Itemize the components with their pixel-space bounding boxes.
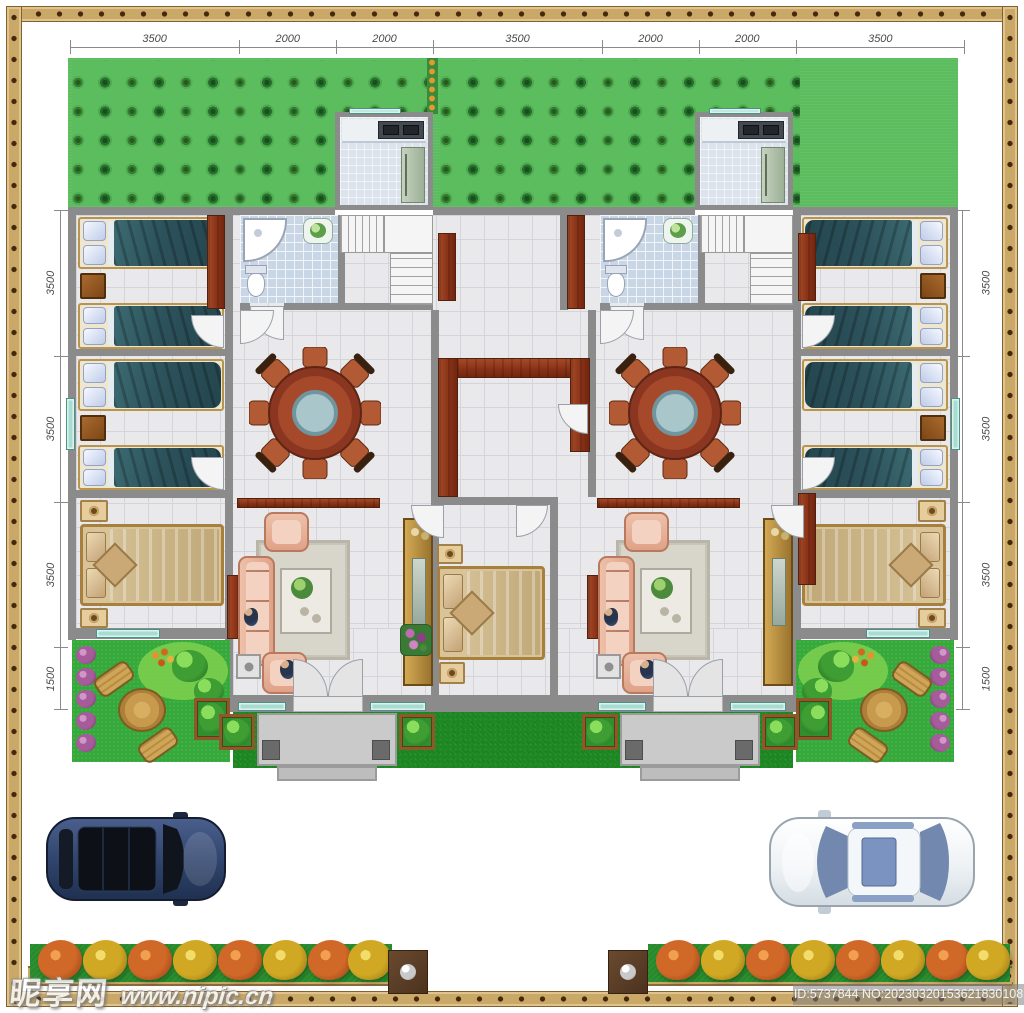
gate-post-icon [388,950,428,994]
side-garden-left [72,640,230,762]
purple-bush-icon [930,668,950,686]
washbasin-icon [663,218,693,244]
porch-post [735,740,753,760]
window [370,702,426,711]
kitchen-sink-icon [738,121,784,139]
frame-top [6,6,1018,22]
nightstand-icon [80,415,106,441]
window [66,398,75,450]
french-door-leaf-icon [293,659,328,697]
french-door-leaf-icon [328,659,363,697]
porch-planter-icon [762,714,798,750]
pillow-icon [83,363,106,383]
side-table-icon [596,654,621,679]
wall [644,303,705,310]
bush-icon [746,940,790,980]
sedan-top-view-icon [768,808,976,916]
side-garden-right [796,640,954,762]
twin-bed-icon [78,359,224,411]
street-hedge-right [648,944,1010,982]
porch-planter-icon [219,714,255,750]
staircase-icon [750,253,793,305]
wall [207,207,335,215]
sink-basin [763,125,779,135]
dim-seg: 3500 [796,32,965,48]
wall-cabinet [237,498,380,508]
wardrobe-cabinet [207,215,225,309]
person-figure-icon [604,608,618,626]
dimension-line-right: 3500 3500 3500 1500 [962,210,976,710]
dim-seg: 2000 [602,32,699,48]
bush-icon [791,940,835,980]
porch-planter-icon [399,714,435,750]
round-dining-table-icon [609,347,741,479]
coffee-table-icon [640,568,692,634]
gate-post-icon [608,950,648,994]
dim-label: 3500 [45,271,57,295]
double-bed-icon [80,524,224,606]
staircase-icon [340,215,384,253]
dim-label: 2000 [638,33,662,45]
armchair-icon [624,512,669,552]
dwelling-unit-right [593,207,958,712]
dim-label: 1500 [980,666,992,690]
door-arc-icon [600,310,634,344]
kitchen-block [695,112,793,210]
pillow-icon [83,221,106,241]
porch-post [372,740,390,760]
bush-icon [836,940,880,980]
dim-label: 3500 [980,416,992,440]
flower-cluster-icon [848,646,878,670]
floor-plan-canvas: 3500 2000 2000 3500 2000 2000 3500 3500 … [0,0,1024,1013]
bush-icon [308,940,352,980]
purple-bush-icon [76,690,96,708]
flower-planter-icon [400,624,432,656]
dresser-icon [403,518,433,686]
purple-bush-icon [76,646,96,664]
watermark-site: 昵享网 www.nipic.cn [8,968,277,1013]
porch-step [277,766,377,781]
armchair-icon [264,512,309,552]
garden-table-icon [118,688,166,732]
fridge-icon [401,147,425,203]
toilet-icon [245,265,267,297]
wall [240,303,250,310]
dimension-line-top: 3500 2000 2000 3500 2000 2000 3500 [70,32,965,48]
nightstand-icon [80,500,108,522]
window [598,702,646,711]
nightstand-icon [80,608,108,628]
round-dining-table-icon [249,347,381,479]
dim-label: 3500 [505,33,529,45]
wardrobe-cabinet [567,215,585,309]
wall [76,349,225,356]
watermark-site-name: 昵享网 [8,976,111,1011]
person-figure-icon [244,608,258,626]
french-door-leaf-icon [688,659,723,697]
wardrobe-cabinet [798,233,816,301]
dim-label: 3500 [980,271,992,295]
wall-cabinet [597,498,740,508]
blanket [114,362,221,408]
double-bed-icon [437,566,545,660]
garden-planter-icon [796,698,832,740]
bush-icon [926,940,970,980]
fridge-icon [761,147,785,203]
porch-step [640,766,740,781]
window [96,629,160,638]
sink-basin [743,125,759,135]
dim-seg: 3500 [433,32,602,48]
pillow-icon [83,307,106,325]
staircase-icon [390,253,433,305]
pillow-icon [83,469,106,486]
kitchen-sink-icon [378,121,424,139]
entry-threshold [653,696,723,712]
sink-basin [383,125,399,135]
dim-label: 1500 [45,666,57,690]
dim-label: 2000 [735,33,759,45]
purple-bush-icon [930,712,950,730]
dim-label: 3500 [142,33,166,45]
side-table-icon [236,654,261,679]
washbasin-icon [303,218,333,244]
bush-icon [881,940,925,980]
kitchen-window [709,108,761,114]
window [730,702,786,711]
french-door-leaf-icon [653,659,688,697]
dim-seg: 3500 [70,32,239,48]
nightstand-icon [439,662,465,684]
dim-label: 3500 [45,562,57,586]
bush-icon [701,940,745,980]
purple-bush-icon [930,690,950,708]
wall [567,207,695,215]
porch-post [262,740,280,760]
twin-bed-icon [78,217,224,269]
toilet-bowl [247,273,265,297]
closet-cabinet [438,358,458,497]
wall [600,303,610,310]
dim-seg: 3500 [962,502,976,648]
bush-icon [656,940,700,980]
entry-threshold [293,696,363,712]
staircase-icon [700,215,744,253]
bush-icon [348,940,392,980]
dim-seg: 3500 [962,356,976,502]
pillow-icon [83,387,106,407]
dim-seg: 2000 [699,32,796,48]
dim-label: 3500 [868,33,892,45]
kitchen-window [349,108,401,114]
door-arc-icon [240,310,274,344]
garden-divider-hedge [427,58,438,114]
dim-seg: 3500 [962,210,976,356]
pillow-icon [83,328,106,346]
dim-seg: 1500 [962,647,976,710]
sink-basin [403,125,419,135]
stair-landing [384,215,433,253]
nightstand-icon [437,544,463,564]
toilet-icon [605,265,627,297]
wall [76,490,225,498]
pillow-icon [83,449,106,466]
dim-label: 2000 [275,33,299,45]
watermark-stock-id: ID:5737844 NO:20230320153621830108 [793,984,1024,1005]
porch-planter-icon [582,714,618,750]
purple-bush-icon [76,712,96,730]
window [238,702,286,711]
suv-top-view-icon [45,812,228,906]
purple-bush-icon [930,734,950,752]
blanket [114,220,221,266]
watermark-site-url: www.nipic.cn [119,983,274,1010]
wall [284,303,345,310]
dim-label: 2000 [372,33,396,45]
pillow-icon [83,245,106,265]
bush-icon [966,940,1010,980]
dresser-icon [763,518,793,686]
frame-left [6,6,22,1007]
purple-bush-icon [76,734,96,752]
purple-bush-icon [930,646,950,664]
dim-seg: 2000 [239,32,336,48]
wall [793,207,958,215]
stair-landing [744,215,793,253]
wardrobe-cabinet [438,233,456,301]
nightstand-icon [80,273,106,299]
kitchen-block [335,112,433,210]
closet-cabinet [438,358,590,378]
dim-label: 3500 [45,416,57,440]
dim-label: 3500 [980,562,992,586]
dim-seg: 2000 [336,32,433,48]
flower-cluster-icon [148,646,178,670]
frame-right [1002,6,1018,1007]
coffee-table-icon [280,568,332,634]
porch-post [625,740,643,760]
garden-table-icon [860,688,908,732]
toilet-bowl [607,273,625,297]
